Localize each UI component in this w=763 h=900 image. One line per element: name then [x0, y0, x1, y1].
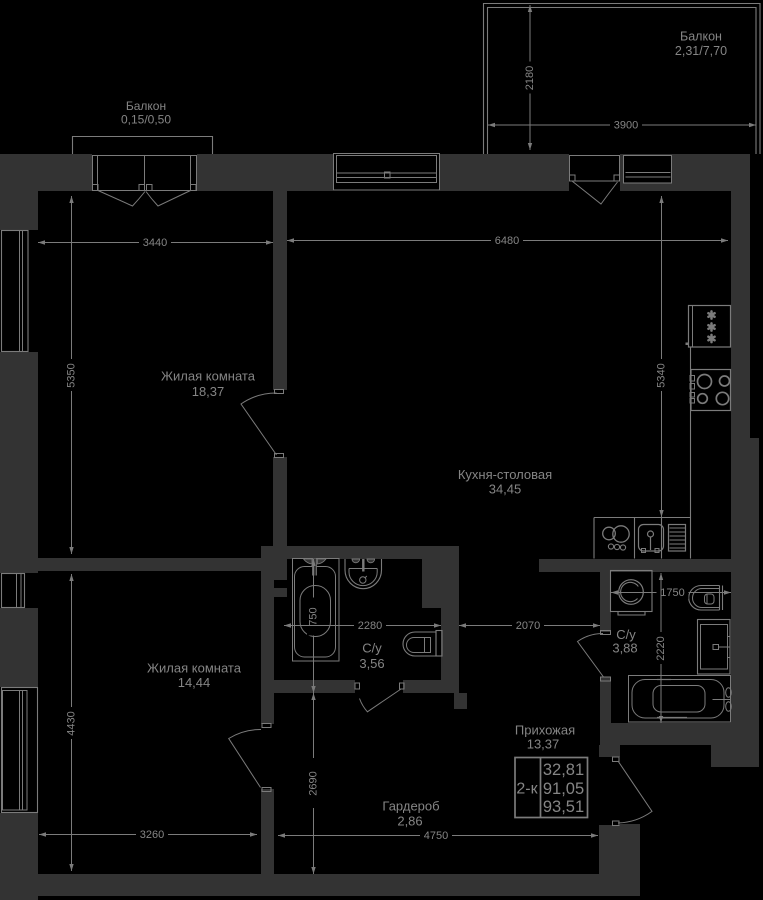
svg-text:3260: 3260	[140, 829, 164, 841]
svg-text:2220: 2220	[655, 636, 667, 660]
svg-text:Прихожая: Прихожая	[515, 722, 575, 737]
svg-text:Жилая комната: Жилая комната	[161, 368, 256, 383]
svg-text:2180: 2180	[524, 66, 536, 90]
svg-text:93,51: 93,51	[543, 798, 584, 816]
svg-text:750: 750	[307, 607, 319, 625]
svg-text:Балкон: Балкон	[126, 99, 166, 113]
svg-text:2-к: 2-к	[516, 781, 538, 798]
svg-text:2280: 2280	[358, 620, 382, 632]
svg-text:3440: 3440	[143, 237, 167, 249]
svg-text:5350: 5350	[65, 363, 77, 387]
svg-text:0,15/0,50: 0,15/0,50	[121, 113, 171, 127]
svg-text:2,31/7,70: 2,31/7,70	[675, 44, 727, 58]
svg-text:4750: 4750	[424, 830, 448, 842]
svg-text:Балкон: Балкон	[680, 29, 722, 43]
svg-text:14,44: 14,44	[178, 675, 211, 690]
svg-text:91,05: 91,05	[543, 780, 584, 798]
svg-text:3,88: 3,88	[612, 640, 637, 655]
svg-text:3900: 3900	[614, 119, 638, 131]
svg-text:34,45: 34,45	[489, 481, 522, 496]
svg-text:5340: 5340	[655, 363, 667, 387]
svg-text:Кухня-столовая: Кухня-столовая	[458, 467, 552, 482]
svg-text:1750: 1750	[660, 587, 684, 599]
svg-text:Жилая комната: Жилая комната	[147, 660, 242, 675]
svg-text:Гардероб: Гардероб	[382, 798, 439, 813]
svg-text:32,81: 32,81	[543, 761, 584, 779]
svg-text:3,56: 3,56	[359, 656, 384, 671]
svg-text:2,86: 2,86	[397, 813, 422, 828]
svg-text:6480: 6480	[495, 235, 519, 247]
svg-text:4430: 4430	[65, 711, 77, 735]
svg-text:18,37: 18,37	[192, 384, 225, 399]
svg-text:2070: 2070	[516, 620, 540, 632]
svg-text:13,37: 13,37	[527, 736, 560, 751]
svg-text:С/у: С/у	[362, 640, 382, 655]
svg-text:2690: 2690	[307, 771, 319, 795]
